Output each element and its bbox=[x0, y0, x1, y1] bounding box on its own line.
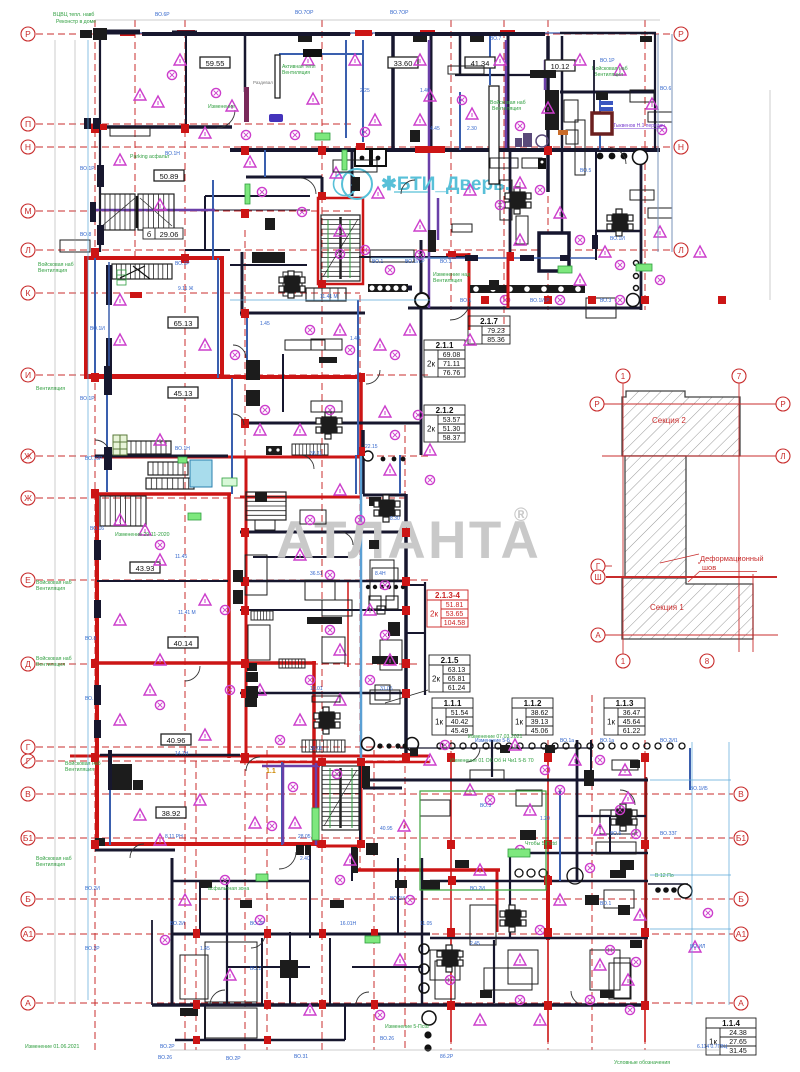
svg-text:Б1: Б1 bbox=[736, 833, 747, 843]
svg-text:8.4Н: 8.4Н bbox=[375, 571, 386, 577]
svg-text:ВО.1И.Р: ВО.1И.Р bbox=[405, 259, 425, 265]
svg-text:А: А bbox=[738, 998, 744, 1008]
svg-text:ВО.1: ВО.1 bbox=[460, 298, 471, 304]
svg-text:ВО.7ОР: ВО.7ОР bbox=[390, 10, 409, 16]
svg-text:2.45: 2.45 bbox=[470, 941, 480, 947]
svg-text:Н: Н bbox=[25, 142, 31, 152]
svg-text:8б.2Р: 8б.2Р bbox=[440, 1054, 454, 1060]
svg-text:9.11 Ж: 9.11 Ж bbox=[178, 286, 194, 292]
svg-text:Е: Е bbox=[25, 575, 31, 585]
svg-text:ВО.5: ВО.5 bbox=[580, 168, 591, 174]
svg-text:2.1.3-4: 2.1.3-4 bbox=[435, 591, 460, 600]
svg-text:Деформационный: Деформационный bbox=[700, 554, 764, 563]
svg-text:71.11: 71.11 bbox=[443, 361, 460, 368]
svg-text:39.13: 39.13 bbox=[531, 719, 549, 726]
svg-text:ВО.5: ВО.5 bbox=[610, 831, 621, 837]
svg-text:И: И bbox=[25, 370, 31, 380]
svg-text:1.20: 1.20 bbox=[540, 816, 550, 822]
svg-text:Б: Б bbox=[25, 894, 31, 904]
svg-text:Ш: Ш bbox=[594, 573, 601, 582]
svg-text:43.93: 43.93 bbox=[136, 564, 155, 573]
svg-text:Д: Д bbox=[25, 659, 31, 669]
svg-text:ВО.1Р: ВО.1Р bbox=[80, 396, 95, 402]
svg-text:104.58: 104.58 bbox=[444, 620, 466, 627]
svg-text:ВО.6Р: ВО.6Р bbox=[155, 12, 170, 18]
svg-text:7: 7 bbox=[737, 372, 742, 381]
svg-text:36.51: 36.51 bbox=[310, 571, 323, 577]
svg-text:1к: 1к bbox=[515, 718, 523, 727]
svg-text:Чтобы 5/Псtd: Чтобы 5/Псtd bbox=[525, 841, 557, 847]
svg-text:1: 1 bbox=[621, 372, 626, 381]
svg-text:61.22: 61.22 bbox=[623, 728, 641, 735]
svg-text:Г: Г bbox=[26, 742, 31, 752]
svg-text:В 12 По: В 12 По bbox=[655, 873, 674, 879]
svg-text:8.11 РН: 8.11 РН bbox=[165, 834, 183, 840]
svg-text:ВО.2Р: ВО.2Р bbox=[250, 921, 265, 927]
svg-text:ВО.3: ВО.3 bbox=[440, 259, 451, 265]
svg-text:В: В bbox=[25, 789, 31, 799]
svg-text:А1: А1 bbox=[23, 929, 34, 939]
svg-text:59.55: 59.55 bbox=[206, 59, 225, 68]
svg-text:1.45: 1.45 bbox=[200, 946, 210, 952]
svg-text:Изменение 5-Б: Изменение 5-Б bbox=[475, 738, 511, 744]
svg-text:®: ® bbox=[514, 505, 528, 526]
svg-text:27.65: 27.65 bbox=[729, 1039, 747, 1046]
svg-text:Б1: Б1 bbox=[23, 833, 34, 843]
svg-text:22.15: 22.15 bbox=[365, 444, 378, 450]
svg-text:А: А bbox=[595, 631, 601, 640]
svg-text:2к: 2к bbox=[432, 675, 440, 684]
svg-text:11.45: 11.45 bbox=[175, 554, 187, 560]
svg-text:2.40: 2.40 bbox=[300, 856, 310, 862]
svg-text:Вентиляция: Вентиляция bbox=[36, 862, 65, 868]
svg-text:ВО.1: ВО.1 bbox=[600, 901, 611, 907]
svg-text:П: П bbox=[25, 119, 31, 129]
svg-text:11.41 М: 11.41 М bbox=[178, 610, 196, 616]
svg-text:38.11: 38.11 bbox=[310, 451, 322, 457]
svg-text:Изменение 01 Об Об Н Чи1 5-Б 7: Изменение 01 Об Об Н Чи1 5-Б 70 bbox=[450, 758, 534, 764]
svg-text:ВО.7ОР: ВО.7ОР bbox=[295, 10, 314, 16]
svg-text:Р: Р bbox=[594, 400, 599, 409]
svg-text:2.30: 2.30 bbox=[467, 126, 477, 132]
svg-text:ВО.1И: ВО.1И bbox=[390, 896, 405, 902]
svg-text:2.1.5: 2.1.5 bbox=[441, 656, 459, 665]
svg-text:1.1.1: 1.1.1 bbox=[444, 699, 462, 708]
svg-text:ВО.3: ВО.3 bbox=[480, 803, 491, 809]
svg-text:Изменение 5-Псtd: Изменение 5-Псtd bbox=[385, 1024, 429, 1030]
svg-text:Parking асфальт: Parking асфальт bbox=[130, 154, 170, 160]
svg-text:ВО.3: ВО.3 bbox=[600, 298, 611, 304]
svg-text:1.1: 1.1 bbox=[266, 768, 276, 775]
svg-text:ВО.7: ВО.7 bbox=[490, 36, 501, 42]
svg-text:Войсковая наб: Войсковая наб bbox=[36, 655, 72, 662]
svg-text:ВО.2И: ВО.2И bbox=[470, 886, 485, 892]
svg-text:1.45: 1.45 bbox=[260, 321, 270, 327]
svg-text:асфальтная зона: асфальтная зона bbox=[208, 886, 249, 892]
svg-text:1.1.4: 1.1.4 bbox=[722, 1019, 740, 1028]
svg-text:ВО.1И: ВО.1И bbox=[90, 326, 105, 332]
svg-text:38.62: 38.62 bbox=[531, 710, 549, 717]
svg-text:36.47: 36.47 bbox=[623, 710, 641, 717]
svg-text:Вентиляция: Вентиляция bbox=[282, 70, 310, 76]
svg-text:65.81: 65.81 bbox=[448, 676, 466, 683]
svg-text:Секция 2: Секция 2 bbox=[652, 416, 686, 425]
svg-text:Секция 1: Секция 1 bbox=[650, 603, 684, 612]
svg-text:6.114 0.7ГВЦ: 6.114 0.7ГВЦ bbox=[697, 1044, 728, 1050]
svg-text:ВО.1а: ВО.1а bbox=[600, 738, 614, 744]
svg-text:38.92: 38.92 bbox=[162, 809, 181, 818]
svg-text:Л: Л bbox=[25, 245, 31, 255]
svg-text:ВО.8: ВО.8 bbox=[80, 232, 91, 238]
svg-text:Н: Н bbox=[678, 142, 684, 152]
svg-text:Вентиляция: Вентиляция bbox=[65, 767, 94, 773]
svg-text:В: В bbox=[738, 789, 744, 799]
svg-text:ВО.31: ВО.31 bbox=[294, 1054, 308, 1060]
svg-text:Вентиляция: Вентиляция bbox=[433, 278, 462, 284]
svg-text:ВО.26: ВО.26 bbox=[158, 1055, 172, 1061]
svg-text:1к: 1к bbox=[435, 718, 443, 727]
svg-text:Л: Л bbox=[780, 452, 785, 461]
svg-text:24.38: 24.38 bbox=[729, 1030, 747, 1037]
svg-text:1.40: 1.40 bbox=[420, 88, 430, 94]
svg-text:ВО.8: ВО.8 bbox=[85, 636, 96, 642]
svg-text:1: 1 bbox=[621, 657, 626, 666]
svg-text:б: б bbox=[147, 230, 151, 239]
svg-text:10.12: 10.12 bbox=[551, 62, 570, 71]
svg-text:65.13: 65.13 bbox=[174, 319, 193, 328]
svg-text:2.1.1: 2.1.1 bbox=[436, 341, 454, 350]
svg-text:Условные обозначения: Условные обозначения bbox=[614, 1060, 670, 1066]
svg-text:Войсковая наб: Войсковая наб bbox=[38, 261, 74, 268]
svg-text:40.42: 40.42 bbox=[451, 719, 469, 726]
svg-text:2к: 2к bbox=[427, 425, 435, 434]
svg-text:Войсковая наб: Войсковая наб bbox=[36, 855, 72, 862]
svg-text:63.13: 63.13 bbox=[448, 667, 466, 674]
svg-text:ВО.1И.Р: ВО.1И.Р bbox=[530, 298, 550, 304]
svg-text:Вентиляция: Вентиляция bbox=[36, 662, 65, 668]
svg-text:ВО.16: ВО.16 bbox=[90, 526, 104, 532]
svg-text:Вентиляция: Вентиляция bbox=[36, 586, 65, 592]
svg-text:51.54: 51.54 bbox=[451, 710, 469, 717]
svg-text:ВО.2Р: ВО.2Р bbox=[160, 1044, 175, 1050]
svg-text:Ж: Ж bbox=[24, 493, 32, 503]
svg-text:16.01Н: 16.01Н bbox=[340, 921, 357, 927]
svg-text:Изменение: Изменение bbox=[208, 104, 235, 110]
svg-text:2.1.7: 2.1.7 bbox=[480, 317, 498, 326]
svg-text:69.08: 69.08 bbox=[443, 352, 461, 359]
svg-text:53.57: 53.57 bbox=[443, 417, 461, 424]
svg-text:ВО.2Р: ВО.2Р bbox=[226, 1056, 241, 1062]
svg-text:76.76: 76.76 bbox=[443, 370, 461, 377]
svg-text:Изменение 29-11-2020: Изменение 29-11-2020 bbox=[115, 532, 170, 538]
svg-text:31.45: 31.45 bbox=[729, 1048, 747, 1055]
svg-text:1к: 1к bbox=[607, 718, 615, 727]
svg-text:1.1.3: 1.1.3 bbox=[616, 699, 634, 708]
svg-text:4.45: 4.45 bbox=[430, 126, 440, 132]
svg-text:8.30: 8.30 bbox=[390, 516, 400, 522]
svg-text:ВО.ЗЗГ: ВО.ЗЗГ bbox=[660, 831, 677, 837]
svg-text:Б: Б bbox=[738, 894, 744, 904]
svg-text:ВО.1Р: ВО.1Р bbox=[600, 58, 615, 64]
svg-text:М: М bbox=[24, 206, 31, 216]
svg-text:ВО.1Н: ВО.1Н bbox=[175, 446, 190, 452]
svg-text:ВО.2И: ВО.2И bbox=[85, 886, 100, 892]
svg-text:А: А bbox=[25, 998, 31, 1008]
svg-text:ВО.1Р: ВО.1Р bbox=[175, 261, 190, 267]
svg-text:51.30: 51.30 bbox=[443, 426, 461, 433]
svg-text:1.1.2: 1.1.2 bbox=[524, 699, 542, 708]
svg-text:Раздевал: Раздевал bbox=[253, 80, 273, 85]
svg-text:Реконстр в доме: Реконстр в доме bbox=[56, 19, 96, 25]
svg-text:Вентиляция: Вентиляция bbox=[36, 386, 65, 392]
svg-text:шов: шов bbox=[702, 563, 716, 572]
svg-text:Л: Л bbox=[678, 245, 684, 255]
svg-text:38.05: 38.05 bbox=[310, 746, 323, 752]
svg-text:45.06: 45.06 bbox=[531, 728, 549, 735]
svg-text:29.06: 29.06 bbox=[160, 230, 179, 239]
svg-text:40.96: 40.96 bbox=[167, 736, 186, 745]
svg-text:2к: 2к bbox=[427, 360, 435, 369]
svg-text:45.49: 45.49 bbox=[451, 728, 469, 735]
svg-text:41.34: 41.34 bbox=[471, 59, 490, 68]
svg-text:ВО.2И: ВО.2И bbox=[170, 921, 185, 927]
svg-text:Войсковая наб: Войсковая наб bbox=[592, 65, 628, 72]
svg-text:79.23: 79.23 bbox=[487, 328, 505, 335]
svg-text:Р: Р bbox=[780, 400, 785, 409]
svg-text:ВО.1: ВО.1 bbox=[372, 259, 383, 265]
svg-text:45.64: 45.64 bbox=[623, 719, 641, 726]
svg-text:ВО.1И: ВО.1И bbox=[610, 236, 625, 242]
svg-text:ВО.1Н: ВО.1Н bbox=[165, 151, 180, 157]
svg-text:2к: 2к bbox=[430, 610, 438, 619]
svg-text:ВО.2И1: ВО.2И1 bbox=[660, 738, 678, 744]
svg-text:Р: Р bbox=[25, 29, 31, 39]
svg-text:Вентиляция: Вентиляция bbox=[594, 72, 623, 78]
svg-text:Войсковая наб: Войсковая наб bbox=[65, 760, 101, 767]
svg-text:ВО.1И5: ВО.1И5 bbox=[690, 786, 708, 792]
svg-text:11.05: 11.05 bbox=[420, 921, 432, 927]
svg-text:11.41 М: 11.41 М bbox=[320, 294, 338, 300]
svg-text:53.65: 53.65 bbox=[446, 611, 464, 618]
svg-text:2.25: 2.25 bbox=[360, 88, 370, 94]
svg-text:ВО.1Р: ВО.1Р bbox=[80, 166, 95, 172]
svg-text:Изменение 01.06.2021: Изменение 01.06.2021 bbox=[25, 1044, 79, 1050]
svg-text:45.13: 45.13 bbox=[174, 389, 193, 398]
svg-text:14.7Н: 14.7Н bbox=[175, 751, 189, 757]
svg-text:ВО.6: ВО.6 bbox=[660, 86, 671, 92]
svg-text:33.60: 33.60 bbox=[394, 59, 413, 68]
svg-text:31.05: 31.05 bbox=[380, 686, 393, 692]
svg-text:Р: Р bbox=[678, 29, 684, 39]
svg-text:16.01: 16.01 bbox=[310, 686, 323, 692]
svg-text:ВО.26: ВО.26 bbox=[380, 1036, 394, 1042]
svg-text:Войсковая наб: Войсковая наб bbox=[36, 579, 72, 586]
svg-text:58.37: 58.37 bbox=[443, 435, 461, 442]
svg-text:ВО.1а: ВО.1а bbox=[560, 738, 574, 744]
svg-text:61.24: 61.24 bbox=[448, 685, 466, 692]
svg-text:85.36: 85.36 bbox=[487, 337, 505, 344]
svg-text:А1: А1 bbox=[736, 929, 747, 939]
svg-text:40.14: 40.14 bbox=[174, 639, 193, 648]
svg-text:АТЛАНТА: АТЛАНТА bbox=[276, 511, 541, 570]
svg-text:К: К bbox=[26, 288, 31, 298]
svg-text:Тыквенов Н.1 передач: Тыквенов Н.1 передач bbox=[613, 123, 665, 129]
svg-text:ВЦВЦ тепл. навб: ВЦВЦ тепл. навб bbox=[53, 12, 94, 18]
svg-text:50.89: 50.89 bbox=[160, 172, 179, 181]
svg-text:Вентиляция: Вентиляция bbox=[492, 106, 521, 112]
svg-text:28.05: 28.05 bbox=[298, 834, 311, 840]
svg-text:Вентиляция: Вентиляция bbox=[38, 268, 67, 274]
svg-text:ВО.2Р: ВО.2Р bbox=[85, 946, 100, 952]
svg-text:8: 8 bbox=[705, 657, 710, 666]
svg-text:2.1.2: 2.1.2 bbox=[436, 406, 454, 415]
svg-text:51.81: 51.81 bbox=[446, 602, 464, 609]
svg-text:Войсковая наб: Войсковая наб bbox=[490, 99, 526, 106]
svg-text:40.95: 40.95 bbox=[380, 826, 393, 832]
svg-text:ВО.2: ВО.2 bbox=[250, 966, 261, 972]
